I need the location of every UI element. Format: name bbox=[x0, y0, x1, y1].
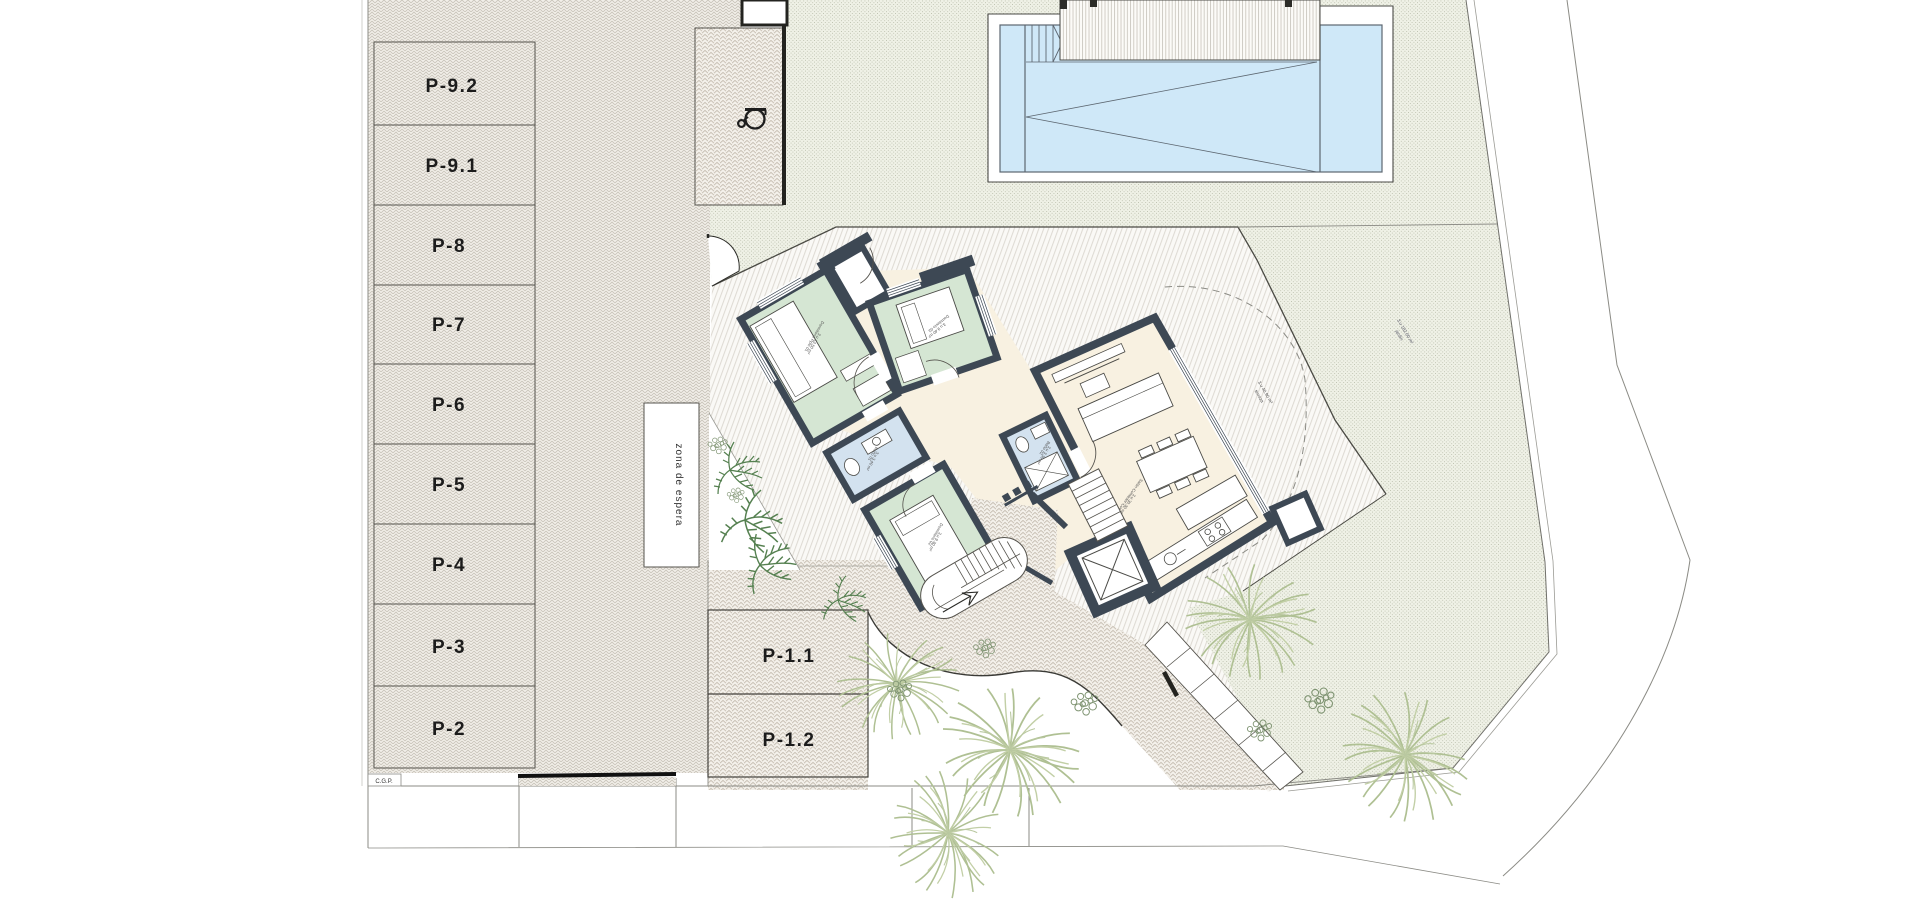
svg-text:zona de espera: zona de espera bbox=[673, 444, 684, 527]
svg-text:P-9.1: P-9.1 bbox=[426, 156, 479, 177]
svg-text:P-7: P-7 bbox=[432, 315, 466, 336]
svg-text:P-3: P-3 bbox=[432, 637, 466, 658]
svg-text:P-8: P-8 bbox=[432, 236, 466, 257]
svg-text:P-4: P-4 bbox=[432, 555, 466, 576]
svg-text:C.G.P.: C.G.P. bbox=[375, 779, 393, 785]
svg-text:P-6: P-6 bbox=[432, 395, 466, 416]
svg-text:P-9.2: P-9.2 bbox=[426, 76, 479, 97]
svg-text:P-1.1: P-1.1 bbox=[763, 646, 816, 667]
svg-text:P-2: P-2 bbox=[432, 719, 466, 740]
svg-text:P-1.2: P-1.2 bbox=[763, 730, 816, 751]
svg-text:P-5: P-5 bbox=[432, 475, 466, 496]
